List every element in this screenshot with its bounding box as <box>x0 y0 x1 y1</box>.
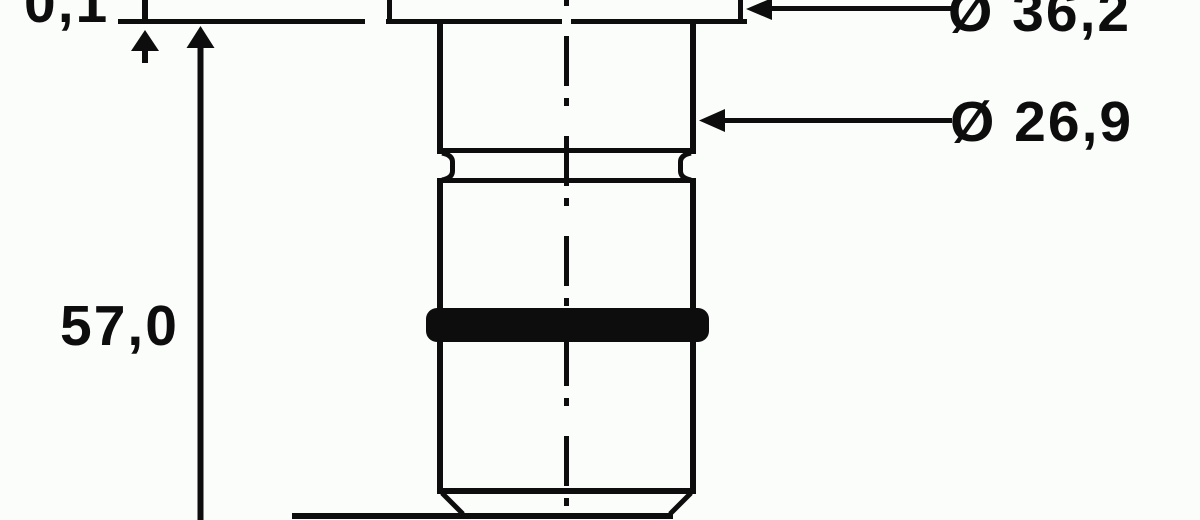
step-dimension <box>131 0 159 63</box>
dim-label-height: 57,0 <box>60 294 179 358</box>
dim-label-flange-diameter: Ø 36,2 <box>948 0 1131 44</box>
arrowhead-up-height-icon <box>187 26 215 48</box>
drawing-canvas: 0,1 57,0 Ø 36,2 Ø 26,9 <box>0 0 1200 520</box>
bottom-chamfer-right <box>670 493 691 514</box>
dim-label-step: 0,1 <box>24 0 109 35</box>
arrowhead-left-flange-icon <box>746 0 772 20</box>
body-diameter-leader <box>699 109 952 132</box>
bottom-chamfer-left <box>442 493 463 514</box>
arrowhead-up-step-icon <box>131 30 159 51</box>
o-ring-band <box>426 308 709 342</box>
height-dimension <box>187 26 215 520</box>
flange-diameter-leader <box>746 0 952 20</box>
neck-right-curve <box>681 153 692 180</box>
dim-label-body-diameter: Ø 26,9 <box>950 90 1133 154</box>
arrowhead-left-body-icon <box>699 109 725 132</box>
engineering-drawing: 0,1 57,0 Ø 36,2 Ø 26,9 <box>0 0 1200 520</box>
neck-left-curve <box>442 153 453 180</box>
